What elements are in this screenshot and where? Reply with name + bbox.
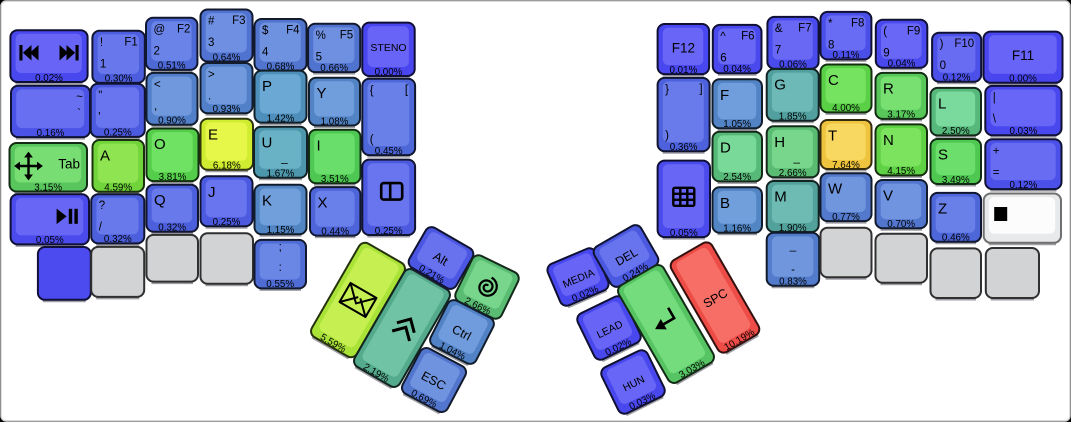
svg-text:": " [98, 90, 102, 102]
svg-text:3.51%: 3.51% [321, 174, 349, 185]
svg-text:1: 1 [100, 58, 106, 70]
svg-text:3.15%: 3.15% [34, 182, 62, 193]
svg-text:$: $ [262, 25, 269, 37]
svg-text:|: | [993, 92, 996, 104]
svg-text:_: _ [789, 240, 797, 252]
svg-text:0.70%: 0.70% [887, 219, 915, 230]
svg-text:0.00%: 0.00% [375, 67, 403, 78]
svg-text:': ' [98, 111, 100, 123]
svg-text:W: W [828, 181, 843, 198]
svg-text:(: ( [370, 134, 374, 146]
svg-text:F: F [720, 87, 729, 104]
svg-text:_: _ [792, 152, 800, 164]
svg-text:4.00%: 4.00% [832, 103, 860, 114]
svg-text:3.81%: 3.81% [159, 172, 187, 183]
svg-text:F12: F12 [672, 41, 695, 56]
svg-text:4.59%: 4.59% [104, 183, 132, 194]
svg-text:0.90%: 0.90% [158, 116, 186, 127]
svg-text:I: I [317, 137, 321, 154]
svg-text:+: + [993, 145, 1000, 157]
svg-text:0.77%: 0.77% [832, 212, 860, 223]
svg-text:0.03%: 0.03% [1010, 126, 1038, 137]
svg-text:?: ? [99, 200, 105, 212]
svg-text:0.12%: 0.12% [1010, 180, 1038, 191]
svg-text:1.42%: 1.42% [267, 113, 295, 124]
svg-text:O: O [154, 136, 166, 153]
svg-text:0.25%: 0.25% [213, 217, 241, 228]
svg-text:]: ] [699, 83, 702, 95]
svg-text:0.51%: 0.51% [158, 61, 186, 72]
svg-text:{: { [370, 85, 374, 97]
svg-text:0.66%: 0.66% [320, 63, 348, 74]
svg-text:}: } [665, 84, 669, 96]
svg-text:F10: F10 [954, 38, 974, 50]
svg-text:F5: F5 [340, 29, 353, 41]
svg-text:M: M [774, 189, 787, 206]
svg-text:0.11%: 0.11% [832, 50, 859, 61]
svg-text:0.64%: 0.64% [213, 52, 241, 63]
svg-text:5: 5 [316, 51, 322, 63]
svg-text:.: . [208, 91, 211, 103]
svg-text:4.15%: 4.15% [887, 166, 915, 177]
svg-text:L: L [938, 95, 946, 112]
svg-text:0.00%: 0.00% [1009, 74, 1037, 85]
svg-text:0.25%: 0.25% [375, 226, 403, 237]
svg-text::: : [279, 262, 282, 274]
svg-text:0.02%: 0.02% [35, 73, 63, 84]
svg-text:2.54%: 2.54% [723, 172, 751, 183]
svg-text:1.05%: 1.05% [723, 119, 751, 130]
svg-text:#: # [208, 16, 215, 28]
svg-text:0.45%: 0.45% [375, 146, 403, 157]
svg-text:F7: F7 [798, 22, 811, 34]
svg-text:Q: Q [154, 192, 166, 209]
svg-text:K: K [262, 192, 272, 209]
svg-text:Y: Y [317, 85, 327, 102]
svg-text:E: E [208, 126, 218, 143]
svg-text:!: ! [100, 37, 103, 49]
svg-text:,: , [154, 100, 157, 112]
svg-text:STENO: STENO [370, 42, 406, 54]
svg-text:0.04%: 0.04% [723, 64, 751, 75]
svg-text:2: 2 [154, 45, 160, 57]
svg-text:1.08%: 1.08% [321, 116, 349, 127]
svg-text:%: % [316, 30, 326, 42]
svg-text:0.32%: 0.32% [104, 234, 132, 245]
svg-text:0.05%: 0.05% [670, 228, 698, 239]
svg-text:0.16%: 0.16% [37, 128, 65, 139]
svg-text:&: & [775, 23, 783, 35]
svg-text:7.64%: 7.64% [832, 160, 860, 171]
svg-text:3.49%: 3.49% [942, 175, 970, 186]
svg-text:A: A [100, 148, 110, 165]
svg-text:U: U [262, 134, 273, 151]
svg-text:0: 0 [940, 60, 946, 72]
svg-text:@: @ [154, 24, 166, 36]
svg-text:6: 6 [720, 52, 726, 64]
svg-text:Z: Z [938, 200, 947, 217]
svg-text:3: 3 [208, 37, 214, 49]
svg-text:F8: F8 [851, 17, 864, 29]
svg-text:): ) [940, 39, 944, 51]
svg-text:F9: F9 [907, 25, 920, 37]
svg-text:S: S [938, 147, 948, 164]
svg-text:F6: F6 [741, 30, 754, 42]
svg-text:0.44%: 0.44% [321, 226, 349, 237]
svg-text:J: J [208, 184, 216, 201]
svg-text:C: C [828, 72, 839, 89]
svg-text:2.66%: 2.66% [779, 168, 807, 179]
svg-text:<: < [154, 79, 161, 91]
svg-text:_: _ [280, 152, 288, 164]
svg-text:0.04%: 0.04% [888, 59, 916, 70]
svg-text:R: R [883, 80, 894, 97]
svg-text:-: - [791, 264, 795, 276]
svg-text:0.93%: 0.93% [213, 104, 241, 115]
svg-text:1.15%: 1.15% [267, 225, 295, 236]
svg-text:0.46%: 0.46% [942, 233, 970, 244]
svg-text:0.83%: 0.83% [779, 277, 807, 288]
svg-text:F11: F11 [1012, 48, 1034, 63]
svg-text:2.50%: 2.50% [942, 126, 970, 137]
svg-text:^: ^ [720, 31, 726, 43]
svg-text:0.36%: 0.36% [670, 142, 698, 153]
svg-text:0.25%: 0.25% [104, 128, 132, 139]
svg-text:0.12%: 0.12% [943, 73, 971, 84]
svg-text:V: V [883, 188, 893, 205]
svg-text:N: N [883, 132, 894, 149]
svg-text:Tab: Tab [58, 157, 80, 172]
svg-text:): ) [665, 130, 669, 142]
svg-text:B: B [720, 195, 730, 212]
svg-text:3.17%: 3.17% [887, 110, 915, 121]
svg-text:(: ( [883, 26, 887, 38]
svg-text:0.05%: 0.05% [36, 235, 64, 246]
svg-text:P: P [262, 78, 272, 95]
svg-text:T: T [828, 128, 837, 145]
svg-text:F4: F4 [286, 25, 300, 37]
svg-text:D: D [720, 139, 731, 156]
svg-text:>: > [208, 69, 215, 81]
svg-text:1.16%: 1.16% [723, 224, 751, 235]
svg-text:H: H [774, 134, 785, 151]
svg-text:0.32%: 0.32% [158, 223, 186, 234]
svg-text:9: 9 [883, 47, 889, 59]
svg-text:`: ` [77, 108, 81, 120]
svg-text:1.67%: 1.67% [267, 169, 295, 180]
svg-text:X: X [318, 195, 328, 212]
svg-text:0.01%: 0.01% [670, 65, 698, 76]
svg-text:;: ; [279, 241, 282, 253]
svg-text:7: 7 [775, 44, 781, 56]
svg-text:F2: F2 [177, 23, 190, 35]
svg-text:F1: F1 [124, 36, 137, 48]
svg-text:~: ~ [76, 91, 83, 103]
svg-text:G: G [774, 77, 786, 94]
svg-text:6.18%: 6.18% [213, 161, 241, 172]
svg-text:F3: F3 [232, 15, 245, 27]
svg-text:4: 4 [262, 47, 269, 59]
svg-text:1.85%: 1.85% [779, 112, 807, 123]
svg-text:=: = [993, 167, 1000, 179]
svg-text:0.55%: 0.55% [266, 279, 294, 290]
svg-text:*: * [828, 18, 833, 30]
